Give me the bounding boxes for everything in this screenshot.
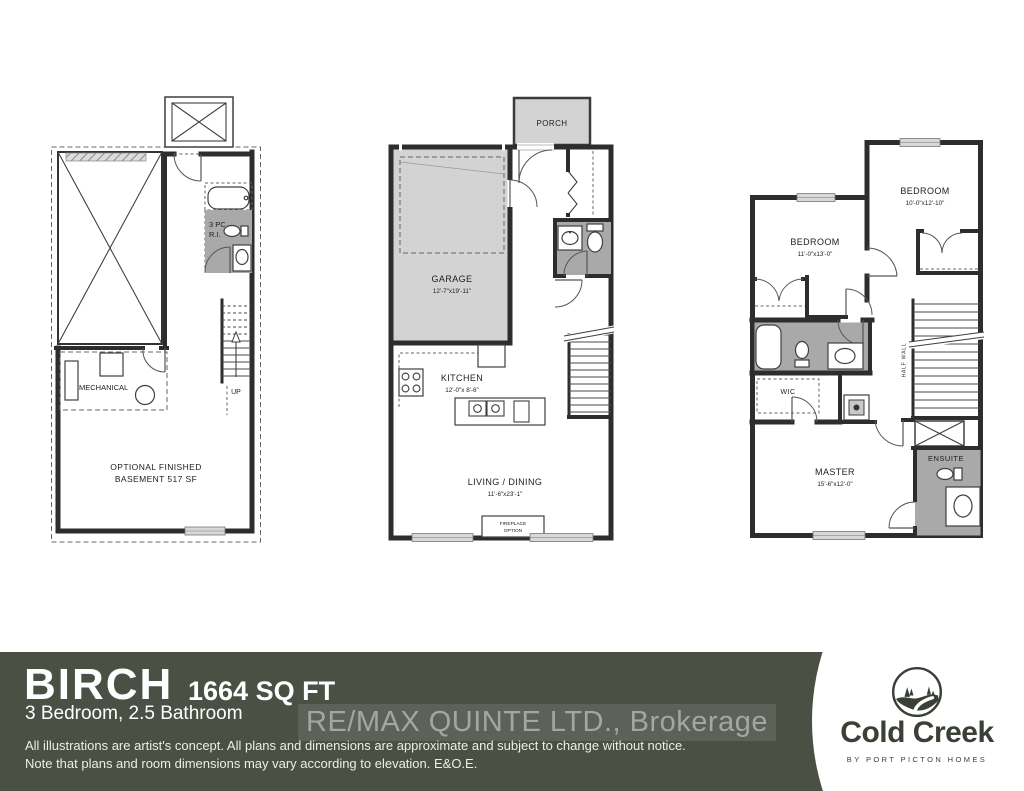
bed-bath-config: 3 Bedroom, 2.5 Bathroom [25, 703, 243, 725]
garage-dims: 12'-7"x19'-11" [433, 288, 471, 295]
rough-in-label: 3 PC [209, 220, 226, 229]
bathtub-icon [756, 325, 781, 369]
basement-window [185, 527, 225, 535]
brand-tagline: BY PORT PICTON HOMES [817, 755, 1017, 764]
bifold-door-icon [922, 233, 962, 253]
rough-in-label-2: R.I. [209, 230, 221, 239]
second-stairs: HALF WALL [902, 300, 986, 418]
svg-text:FIREPLACE: FIREPLACE [500, 521, 527, 527]
sump-icon [136, 386, 155, 405]
garage-entry-door [508, 180, 538, 207]
main-stairs [564, 325, 616, 417]
kitchen: KITCHEN 12'-0"x 8'-6" [399, 345, 545, 425]
laundry-tub [844, 395, 869, 420]
footer-band: BIRCH 1664 SQ FT 3 Bedroom, 2.5 Bathroom… [0, 652, 1024, 791]
unexcavated-area [58, 152, 162, 344]
garage: GARAGE 12'-7"x19'-11" [394, 150, 511, 344]
entry-door [517, 143, 554, 183]
toilet-icon [224, 226, 240, 237]
basement-floor-plan: 3 PC R.I. MECHANICAL OPTIONAL FINISHED B… [48, 90, 264, 560]
disclaimer-line-2: Note that plans and room dimensions may … [25, 755, 686, 773]
cold-creek-emblem-icon [889, 664, 945, 720]
bifold-door-icon [755, 279, 803, 301]
bedroom-right-dims: 10'-0"x12'-10" [906, 200, 945, 207]
master-label: MASTER [815, 467, 855, 477]
bathroom-rough-in: 3 PC R.I. [205, 183, 252, 273]
toilet-icon [796, 342, 809, 359]
bedroom-left-closet [752, 277, 807, 317]
ensuite: ENSUITE [889, 448, 981, 536]
walk-in-closet: WIC [752, 373, 840, 422]
toilet-tank-icon [587, 224, 603, 231]
basement-stairs: UP [222, 300, 251, 415]
second-floor-plan: BEDROOM 10'-0"x12'-10" BEDROOM 11'-0"x13… [743, 138, 990, 562]
stair-door-arc [174, 154, 201, 181]
bedroom-right-closet [918, 231, 981, 273]
furnace-icon [100, 353, 123, 376]
brokerage-watermark: RE/MAX QUINTE LTD., Brokerage [298, 704, 776, 741]
stove-icon [399, 369, 423, 396]
half-wall-label: HALF WALL [902, 343, 908, 378]
floorplan-sheet: 3 PC R.I. MECHANICAL OPTIONAL FINISHED B… [0, 0, 1024, 791]
bedroom-right: BEDROOM 10'-0"x12'-10" [900, 186, 981, 273]
sink-icon [835, 349, 855, 364]
up-label: UP [231, 389, 241, 396]
entry-closet [566, 147, 593, 217]
svg-text:BASEMENT 517 SF: BASEMENT 517 SF [115, 474, 197, 484]
optional-basement-label: OPTIONAL FINISHED BASEMENT 517 SF [110, 462, 202, 484]
second-window-bottom [813, 532, 865, 540]
main-floor-plan: PORCH GARAGE 12'-7"x19'-11" [386, 95, 616, 545]
toilet-icon [937, 469, 953, 480]
kitchen-island [455, 398, 545, 425]
porch: PORCH [514, 98, 590, 145]
water-heater-icon [65, 361, 78, 400]
toilet-icon [588, 232, 603, 252]
master-bedroom: MASTER 15'-6"x12'-0" [815, 467, 855, 488]
bedroom-partition-wall [867, 197, 897, 300]
living-label: LIVING / DINING [468, 477, 543, 487]
fridge-icon [478, 345, 505, 367]
up-arrow-icon [232, 332, 240, 342]
cold-cellar [165, 97, 233, 147]
wic-label: WIC [780, 389, 795, 396]
linen-closet [915, 421, 964, 446]
living-dims: 11'-6"x23'-1" [488, 491, 523, 498]
sink-icon [954, 495, 972, 517]
living-dining: LIVING / DINING 11'-6"x23'-1" FIREPLACE … [468, 477, 544, 537]
bathtub-icon [208, 187, 249, 209]
bedroom-left-label: BEDROOM [790, 237, 839, 247]
builder-logo: Cold Creek BY PORT PICTON HOMES [817, 652, 1017, 791]
main-bathroom [752, 320, 872, 373]
svg-text:OPTIONAL FINISHED: OPTIONAL FINISHED [110, 462, 202, 472]
mechanical-label: MECHANICAL [79, 383, 128, 392]
bedroom-left: BEDROOM 11'-0"x13'-0" [752, 237, 872, 317]
master-dims: 15'-6"x12'-0" [817, 481, 852, 488]
bifold-door-icon [568, 171, 577, 215]
garage-label: GARAGE [432, 274, 473, 284]
ensuite-label: ENSUITE [928, 454, 964, 463]
svg-text:OPTION: OPTION [504, 528, 523, 534]
kitchen-label: KITCHEN [441, 373, 483, 383]
bedroom-right-label: BEDROOM [900, 186, 949, 196]
basement-stair-door [555, 280, 582, 307]
powder-room [555, 220, 611, 276]
mechanical-room: MECHANICAL [60, 348, 167, 410]
hall-walls [840, 420, 913, 446]
brand-name: Cold Creek [817, 716, 1017, 750]
disclaimer: All illustrations are artist's concept. … [25, 737, 686, 773]
kitchen-dims: 12'-0"x 8'-6" [445, 387, 478, 394]
bedroom-left-dims: 11'-0"x13'-0" [798, 251, 833, 258]
porch-label: PORCH [537, 119, 568, 128]
